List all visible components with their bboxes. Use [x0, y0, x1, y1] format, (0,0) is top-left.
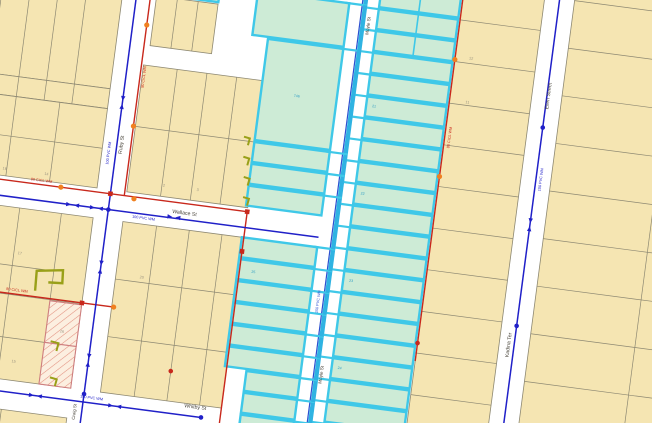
service-node-marker — [340, 180, 344, 184]
service-node-marker — [320, 332, 324, 336]
lot-number-label: 14 — [44, 172, 49, 177]
junction-marker — [108, 191, 113, 196]
service-node-marker — [328, 267, 332, 271]
lot-number-label: 21 — [372, 104, 376, 108]
block[interactable] — [150, 0, 218, 54]
lot-number-label: 12 — [469, 56, 474, 61]
lot-number-label: 15 — [11, 359, 16, 364]
lot-number-label: 26 — [60, 329, 65, 334]
service-node-marker — [322, 310, 326, 314]
lot-number-label: 746 — [293, 94, 299, 99]
lot-number-label: 25 — [251, 270, 255, 274]
block[interactable] — [100, 222, 243, 408]
lot-number-label: 11 — [465, 100, 469, 104]
cadastral-map: Ruby StWallace StWhitby StCraig StEllen … — [0, 0, 652, 423]
service-node-marker — [348, 114, 352, 118]
service-node-marker — [337, 201, 341, 205]
service-node-marker — [351, 92, 355, 96]
junction-marker — [79, 300, 84, 305]
service-node-marker — [325, 289, 329, 293]
lot-number-label: 20 — [139, 275, 144, 280]
block[interactable] — [127, 65, 265, 208]
junction-marker — [239, 249, 244, 254]
service-node-marker — [360, 27, 364, 31]
service-node-marker — [334, 223, 338, 227]
service-node-marker — [331, 245, 335, 249]
service-node-marker — [308, 420, 312, 423]
service-node-marker — [345, 136, 349, 140]
service-node-marker — [317, 354, 321, 358]
service-node-marker — [357, 49, 361, 53]
service-node-marker — [363, 5, 367, 9]
lot-number-label: 22 — [360, 191, 364, 195]
service-node-marker — [354, 71, 358, 75]
lot-number-label: 16 — [2, 166, 7, 171]
lot-number-label: 24 — [337, 366, 341, 370]
map-viewport[interactable]: Ruby StWallace StWhitby StCraig StEllen … — [0, 0, 652, 423]
service-node-marker — [343, 158, 347, 162]
lot-number-label: 23 — [349, 279, 353, 283]
service-node-marker — [311, 398, 315, 402]
hatched-parcel[interactable] — [44, 301, 81, 347]
junction-marker — [245, 209, 250, 214]
lot-number-label: 17 — [17, 251, 22, 256]
